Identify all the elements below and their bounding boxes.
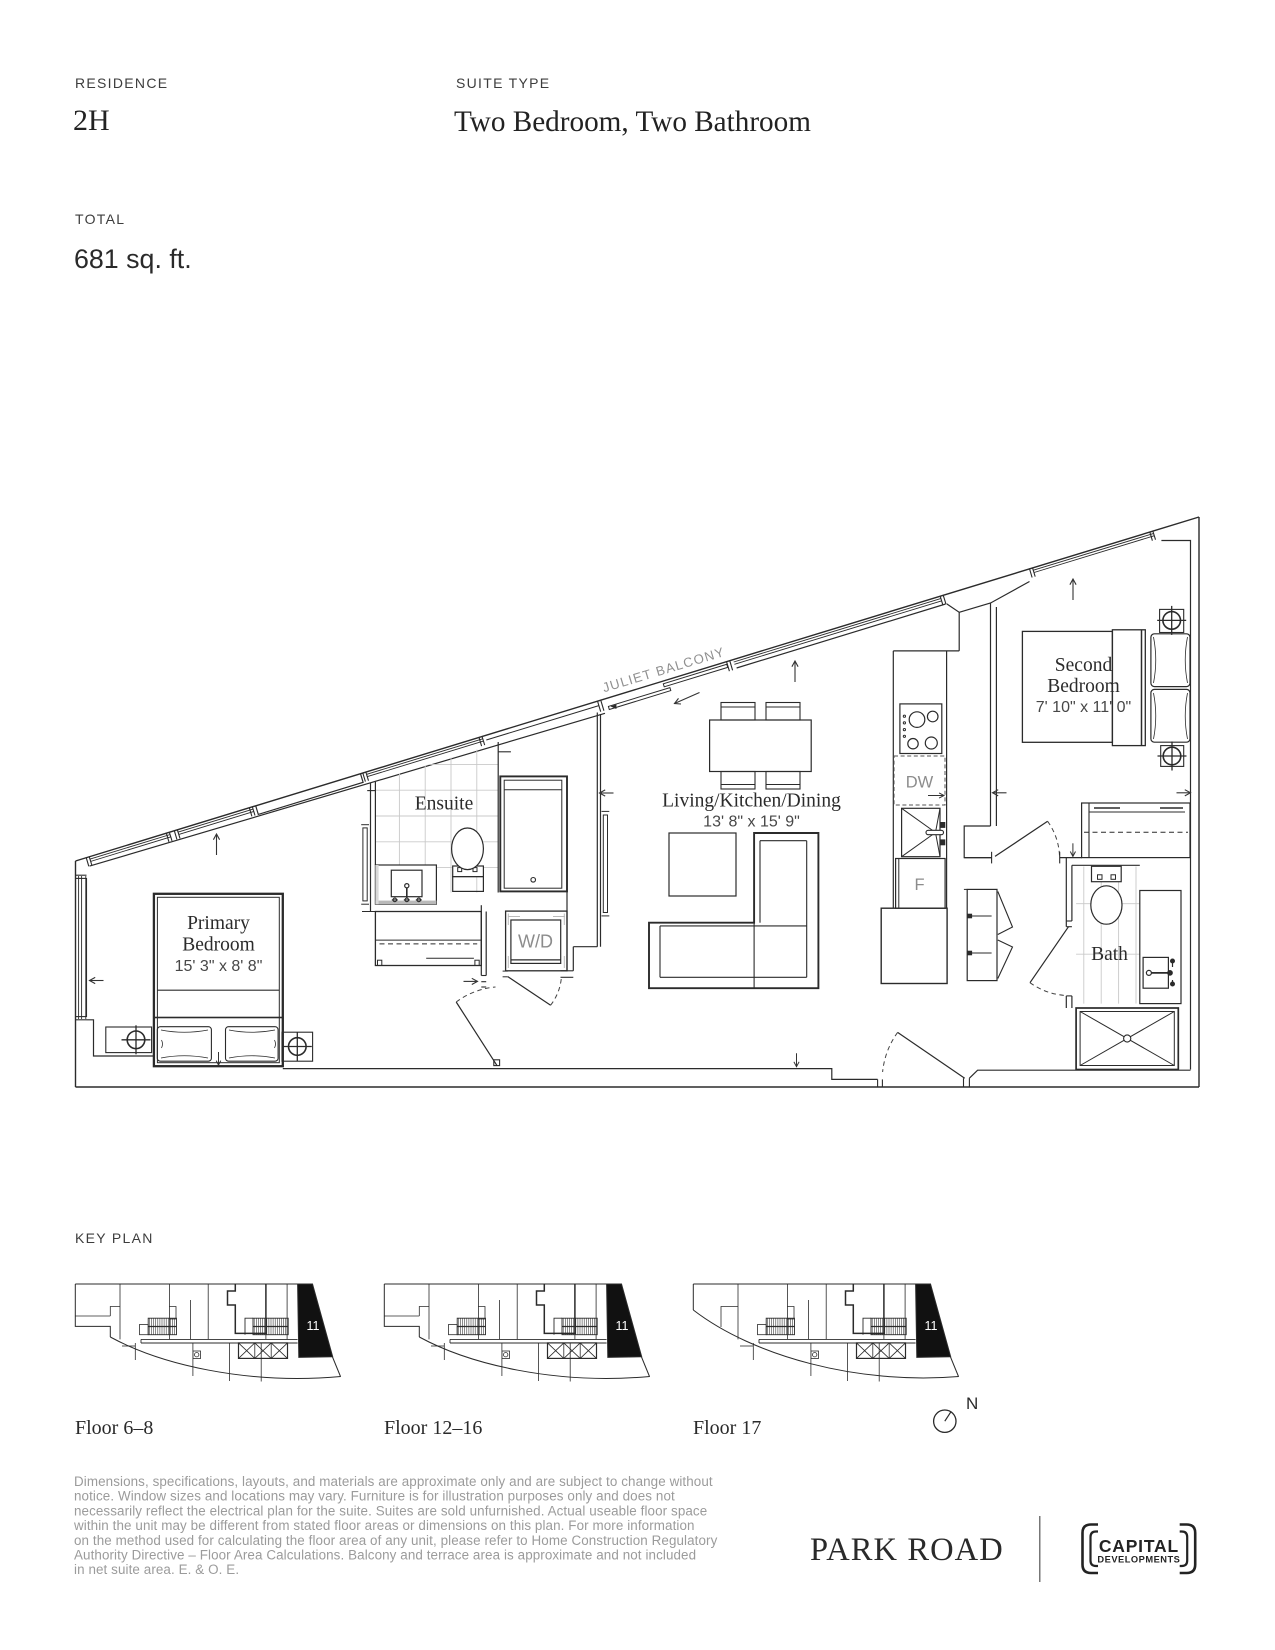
svg-text:necessarily reflect the electr: necessarily reflect the electrical plan … [74, 1503, 707, 1518]
svg-text:2H: 2H [73, 104, 110, 137]
svg-text:Ensuite: Ensuite [415, 794, 474, 815]
svg-text:Floor 6–8: Floor 6–8 [75, 1417, 153, 1439]
svg-text:11: 11 [616, 1319, 629, 1333]
svg-text:CAPITAL: CAPITAL [1099, 1536, 1179, 1556]
svg-text:SUITE TYPE: SUITE TYPE [456, 75, 550, 91]
svg-text:within the unit may be differe: within the unit may be different from st… [73, 1518, 695, 1533]
svg-text:in net suite area. E. & O. E.: in net suite area. E. & O. E. [74, 1562, 239, 1577]
svg-text:Second: Second [1055, 655, 1113, 676]
svg-text:Bath: Bath [1091, 944, 1128, 965]
svg-text:KEY PLAN: KEY PLAN [75, 1230, 154, 1246]
svg-text:13' 8" x 15' 9": 13' 8" x 15' 9" [703, 814, 800, 831]
svg-text:11: 11 [925, 1319, 938, 1333]
svg-text:TOTAL: TOTAL [75, 211, 125, 227]
svg-text:Bedroom: Bedroom [182, 935, 255, 956]
svg-text:W/D: W/D [518, 932, 553, 952]
svg-text:Floor 17: Floor 17 [693, 1417, 761, 1439]
svg-text:on the method used for calcula: on the method used for calculating the f… [74, 1533, 718, 1548]
svg-text:681 sq. ft.: 681 sq. ft. [74, 244, 192, 274]
svg-text:11: 11 [307, 1319, 320, 1333]
svg-text:Two Bedroom, Two Bathroom: Two Bedroom, Two Bathroom [454, 106, 811, 138]
svg-text:Living/Kitchen/Dining: Living/Kitchen/Dining [662, 791, 841, 812]
svg-text:Primary: Primary [187, 913, 250, 934]
svg-text:7' 10" x 11' 0": 7' 10" x 11' 0" [1036, 699, 1131, 716]
svg-text:DEVELOPMENTS: DEVELOPMENTS [1097, 1555, 1180, 1565]
svg-text:Bedroom: Bedroom [1047, 676, 1120, 697]
svg-text:15' 3" x 8' 8": 15' 3" x 8' 8" [175, 958, 263, 975]
svg-text:PARK ROAD: PARK ROAD [810, 1532, 1004, 1568]
svg-text:DW: DW [906, 774, 934, 792]
svg-text:notice. Window sizes and locat: notice. Window sizes and locations may v… [74, 1489, 675, 1504]
svg-text:Dimensions, specifications, la: Dimensions, specifications, layouts, and… [74, 1474, 713, 1489]
svg-text:RESIDENCE: RESIDENCE [75, 75, 168, 91]
svg-text:N: N [966, 1394, 978, 1413]
svg-text:F: F [914, 876, 924, 894]
svg-text:Authority Directive – Floor Ar: Authority Directive – Floor Area Calcula… [74, 1548, 696, 1563]
svg-text:Floor 12–16: Floor 12–16 [384, 1417, 482, 1439]
